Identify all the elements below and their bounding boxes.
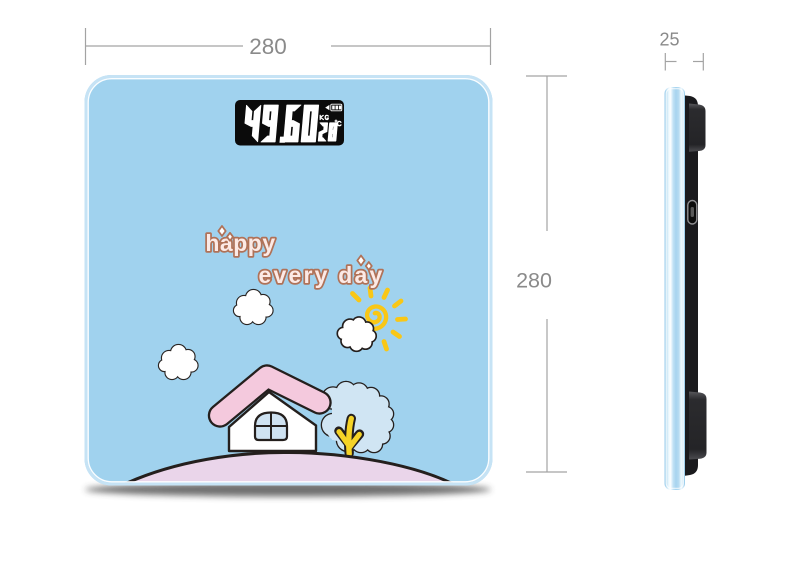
svg-text:happy: happy bbox=[205, 230, 275, 256]
svg-text:280: 280 bbox=[249, 34, 287, 59]
svg-text:280: 280 bbox=[516, 269, 552, 293]
svg-text:25: 25 bbox=[659, 30, 679, 50]
